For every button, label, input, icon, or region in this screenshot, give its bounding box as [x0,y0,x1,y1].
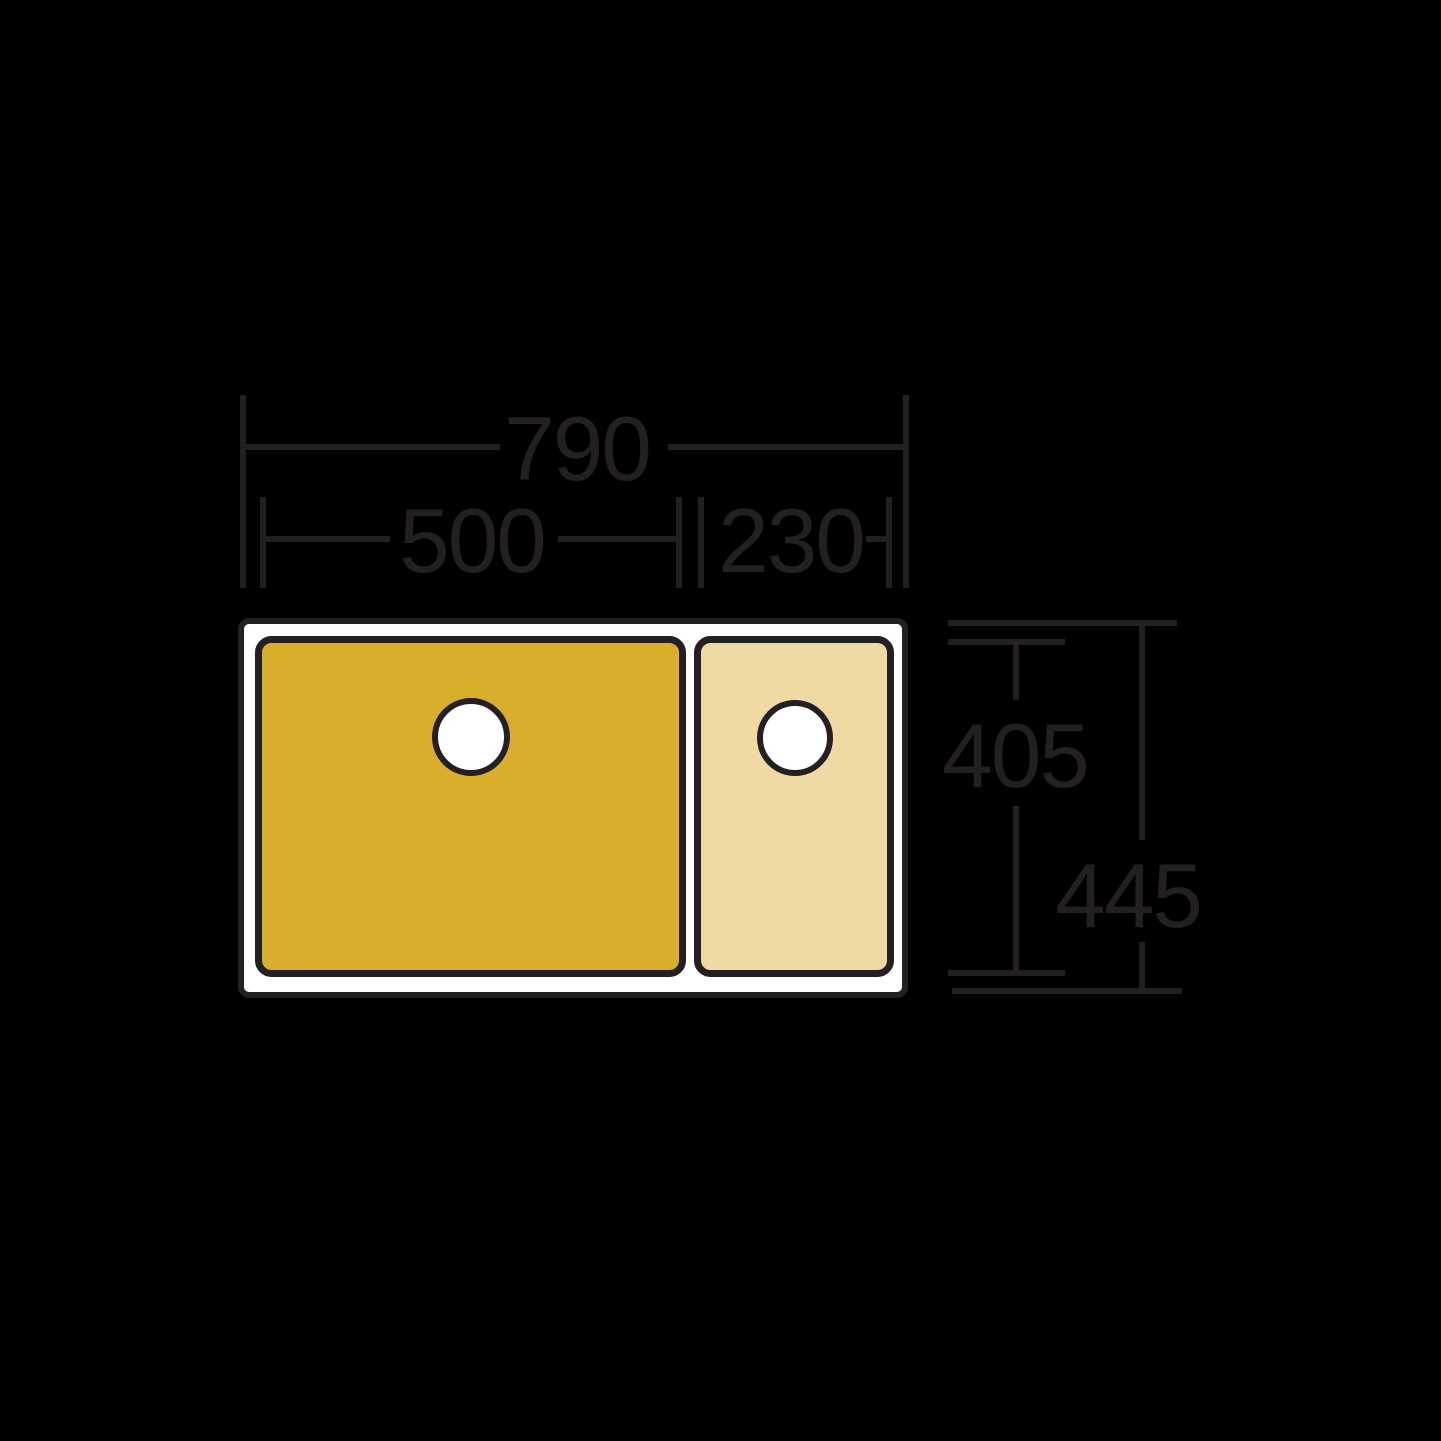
dim-label-half-bowl-width: 230 [718,491,864,592]
dim-main-bowl-width: 500 [263,491,679,592]
sink-technical-drawing: 790 500 230 [0,0,1441,1441]
dim-label-overall-depth: 445 [1055,846,1201,947]
sink-body [241,621,905,995]
dim-label-bowl-depth: 405 [942,706,1088,807]
sink-dimension-diagram: 790 500 230 [0,0,1441,1441]
half-bowl-drain-hole [760,703,830,773]
half-bowl [698,640,891,974]
dim-half-bowl-width: 230 [701,491,889,592]
dim-overall-depth: 445 [948,623,1201,991]
main-bowl [259,640,683,974]
dim-label-overall-width: 790 [504,399,650,500]
main-bowl-drain-hole [435,701,507,773]
dim-label-main-bowl-width: 500 [399,491,545,592]
